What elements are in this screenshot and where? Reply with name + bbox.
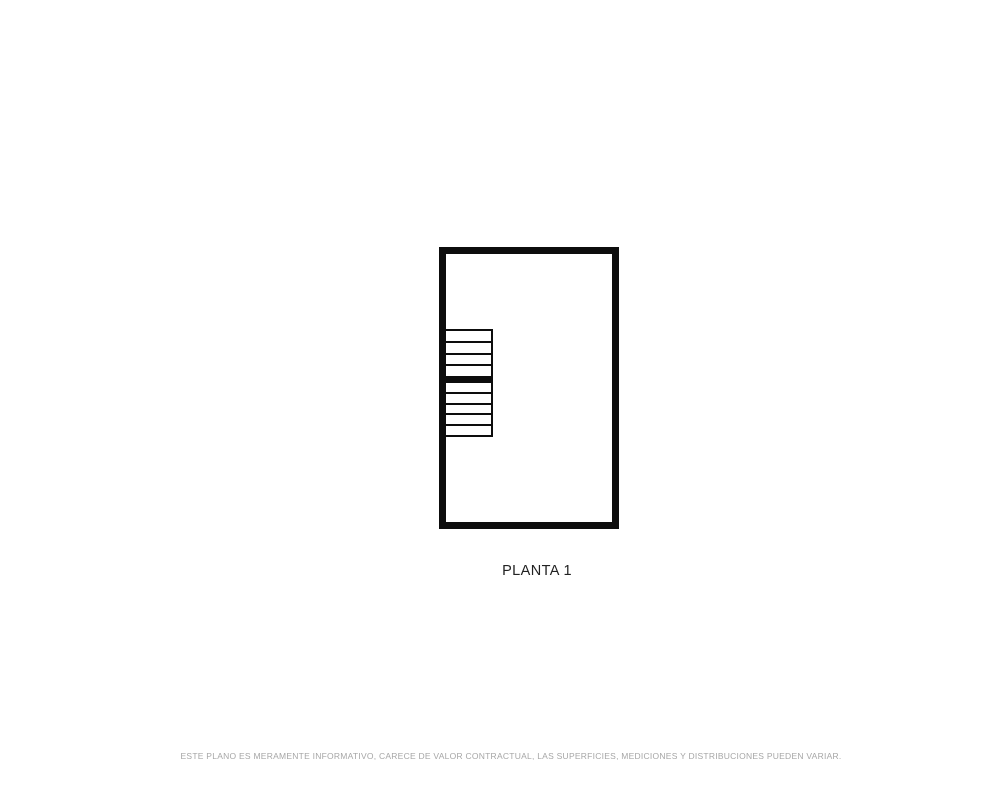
disclaimer-text: ESTE PLANO ES MERAMENTE INFORMATIVO, CAR…: [181, 751, 842, 761]
floor-label: PLANTA 1: [502, 563, 572, 579]
staircase-lower-flight: [446, 383, 491, 437]
stair-step: [446, 426, 491, 437]
stair-step: [446, 394, 491, 405]
stair-step: [446, 366, 491, 376]
staircase-landing-divider: [446, 376, 491, 383]
staircase: [446, 329, 493, 437]
stair-step: [446, 405, 491, 416]
stair-step: [446, 343, 491, 355]
stair-step: [446, 383, 491, 394]
stair-step: [446, 355, 491, 367]
stair-step: [446, 415, 491, 426]
stair-step: [446, 331, 491, 343]
staircase-upper-flight: [446, 331, 491, 376]
page: { "floorplan": { "label": "PLANTA 1", "d…: [0, 0, 1000, 800]
